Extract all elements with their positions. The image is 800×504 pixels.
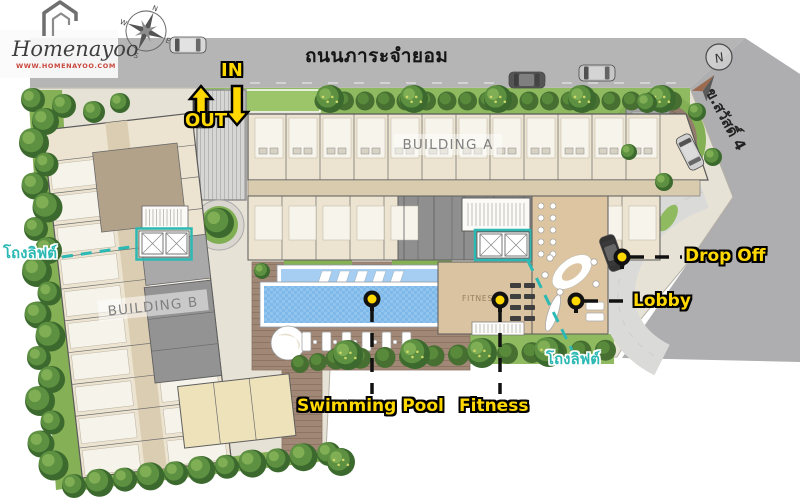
fitness-label: Fitness — [459, 398, 528, 415]
jacuzzi — [271, 326, 305, 360]
lobby-area — [532, 196, 608, 334]
car — [509, 72, 545, 88]
building-b-annex — [178, 374, 296, 448]
homenayoo-logo-url: WWW.HOMENAYOO.COM — [16, 62, 116, 70]
top-road-name: ถนนภาระจำยอม — [305, 47, 448, 66]
homenayoo-logo-text: Homenayoo — [12, 37, 139, 61]
fitness-area: FITNESS — [438, 262, 535, 335]
in-label: IN — [221, 62, 243, 80]
site-plan-graphic: FITNESS BUILDING A BUILDING B N E S W N — [0, 0, 800, 504]
car — [579, 65, 615, 81]
lobby-label: Lobby — [633, 293, 691, 310]
swimming-pool-label: Swimming Pool — [297, 398, 444, 415]
car — [170, 37, 206, 53]
site-plan: FITNESS BUILDING A BUILDING B N E S W N — [0, 0, 800, 504]
lift-hall-label-right: โถงลิฟต์ — [546, 352, 600, 367]
building-a-label: BUILDING A — [402, 137, 493, 153]
drop-off-label: Drop Off — [685, 248, 765, 265]
lift-hall-label-left: โถงลิฟต์ — [3, 246, 57, 261]
lift-hall-left-core — [137, 206, 192, 260]
out-label: OUT — [185, 112, 227, 130]
main-pool — [264, 286, 452, 323]
